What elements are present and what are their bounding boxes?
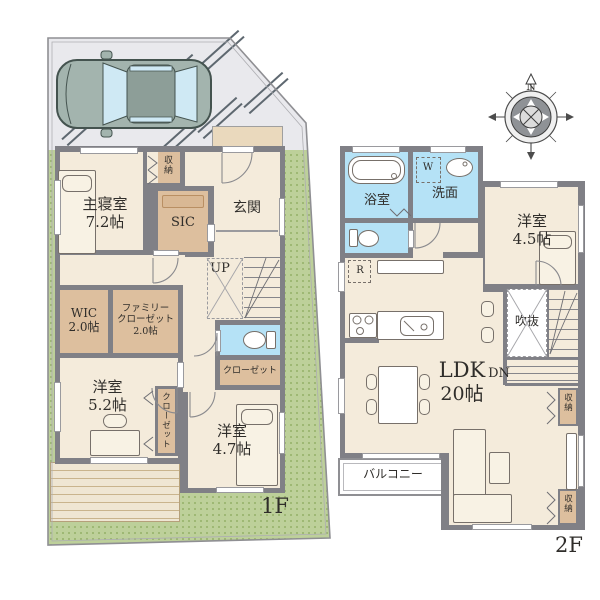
window: [80, 147, 138, 154]
label-balcony: バルコニー: [352, 467, 434, 481]
window: [338, 378, 345, 414]
label-sic: SIC: [163, 215, 203, 231]
kitchen-half-wall: [345, 338, 379, 343]
label-stairs-up: UP: [203, 261, 237, 277]
sic-shelf: [162, 195, 204, 208]
door-gap: [222, 146, 254, 153]
dining-chair: [366, 399, 377, 415]
window: [216, 487, 264, 493]
stairs-up-treads: [244, 257, 280, 320]
label-storage-mid: 収納: [563, 393, 572, 412]
sink-icon: [446, 158, 473, 177]
label-bedroom-52: 洋室 5.2帖: [70, 378, 145, 414]
toilet-tank-2f: [349, 229, 358, 247]
stairs-down-treads-lower: [507, 359, 578, 383]
sofa-icon: [453, 429, 486, 501]
window: [54, 180, 61, 235]
window: [90, 457, 148, 464]
study-chair: [481, 327, 494, 343]
kitchen-cabinet: [377, 260, 444, 274]
label-bedroom-45: 洋室 4.5帖: [498, 212, 566, 248]
chair-bedroom-52: [103, 414, 127, 428]
wood-deck: [50, 462, 180, 522]
dining-chair: [366, 374, 377, 390]
label-storage-bottom: 収納: [563, 494, 572, 513]
window: [578, 205, 584, 253]
pillow-master: [62, 175, 92, 192]
label-closet-mid: クローゼット: [222, 366, 278, 377]
toilet-tank-1f: [266, 331, 276, 349]
wall-segment: [443, 252, 483, 258]
floor-plan-canvas: 主寝室 7.2帖 収納 SIC 玄関 UP WIC 2.0帖 ファミリー クロー…: [0, 0, 600, 600]
label-bathroom: 浴室: [350, 193, 404, 209]
door-gap: [215, 330, 221, 352]
corridor-center: [183, 320, 215, 392]
toilet-bowl-1f: [243, 331, 266, 349]
stove-icon: [349, 313, 377, 338]
label-bedroom-47: 洋室 4.7帖: [196, 422, 268, 458]
closet-door-strip: [147, 152, 158, 183]
door-gap: [207, 224, 215, 242]
tv-icon: [566, 433, 577, 490]
label-washer: W: [420, 162, 436, 174]
window: [472, 524, 532, 530]
label-closet-side: クローゼット: [161, 392, 170, 449]
kitchen-sink-icon: [400, 316, 434, 336]
door-gap: [177, 362, 184, 388]
entry-hall: [185, 152, 280, 186]
dining-table: [378, 366, 418, 424]
sofa-table: [489, 452, 510, 484]
label-family-closet: ファミリー クローゼット 2.0帖: [114, 303, 177, 337]
window: [54, 382, 61, 432]
window: [500, 181, 558, 188]
door-gap: [408, 230, 414, 248]
desk-bedroom-52: [90, 430, 140, 456]
window: [338, 262, 345, 292]
sofa-icon: [453, 494, 512, 523]
label-floor-2f: 2F: [546, 533, 592, 558]
window: [279, 412, 285, 454]
balcony-slider: [362, 453, 440, 459]
label-fridge: R: [352, 265, 368, 277]
label-compass-north: N: [524, 80, 538, 93]
label-storage-top: 収納: [162, 155, 171, 175]
label-stairs-down: DN: [484, 366, 514, 382]
room-entrance: [214, 186, 280, 257]
corridor-left: [60, 255, 185, 285]
label-floor-1f: 1F: [252, 494, 298, 519]
bathtub-inner: [352, 160, 401, 180]
label-master-bedroom: 主寝室 7.2帖: [65, 195, 145, 231]
entrance-step: [216, 230, 278, 232]
window: [578, 435, 584, 487]
stairs-down-treads-upper: [549, 289, 578, 357]
window: [352, 146, 400, 153]
window: [279, 198, 285, 236]
label-entrance: 玄関: [218, 200, 276, 217]
label-wic: WIC 2.0帖: [62, 306, 106, 335]
window: [430, 146, 466, 153]
label-void: 吹抜: [508, 314, 546, 328]
door-gap: [153, 250, 179, 256]
label-washroom: 洗面: [417, 186, 473, 202]
wall-segment: [441, 453, 449, 530]
study-chair: [481, 301, 494, 317]
toilet-bowl-2f: [358, 230, 379, 247]
